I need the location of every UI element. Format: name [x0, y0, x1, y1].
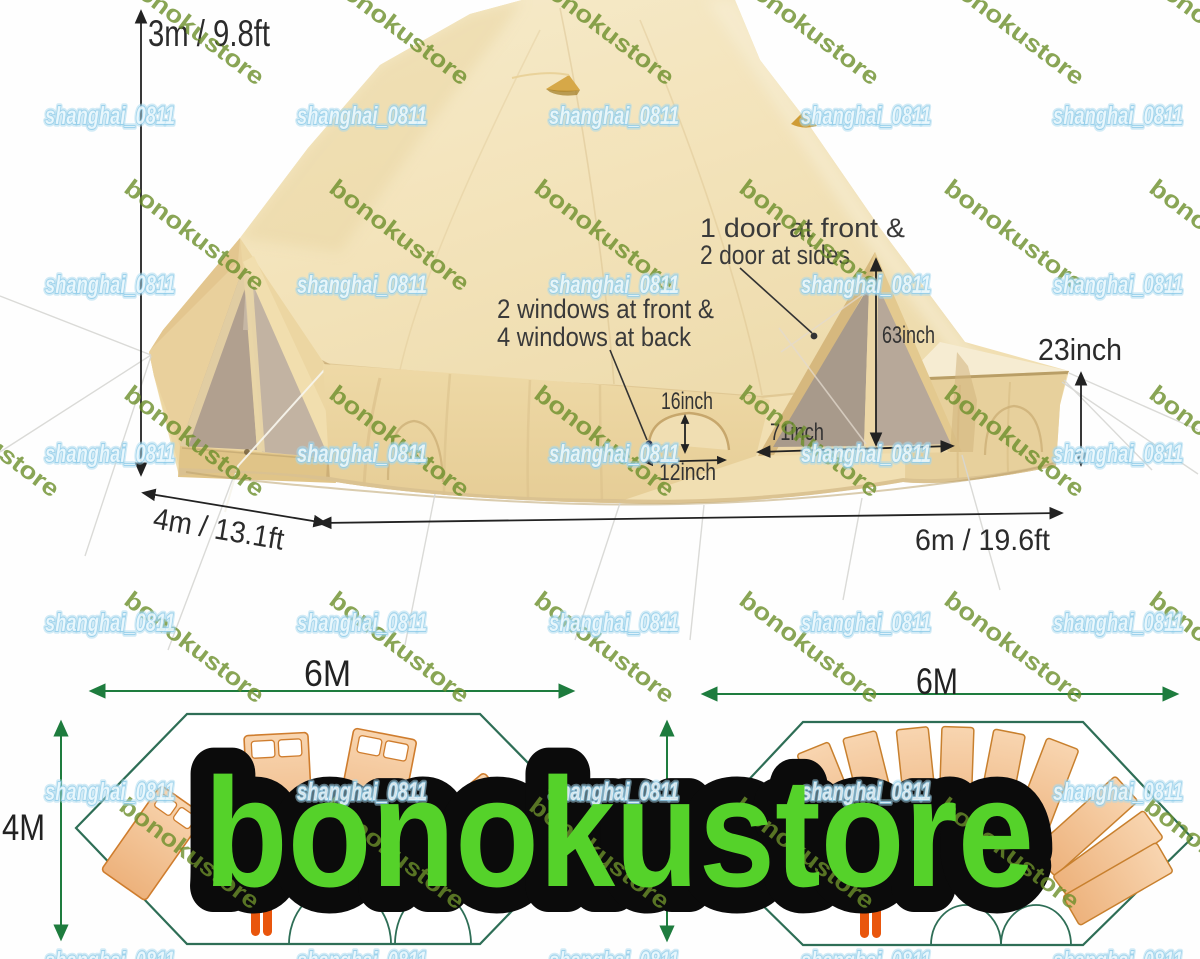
svg-text:6m / 19.6ft: 6m / 19.6ft [915, 524, 1051, 557]
svg-text:16inch: 16inch [661, 388, 713, 415]
svg-text:6M: 6M [916, 661, 958, 702]
svg-text:23inch: 23inch [1038, 332, 1122, 367]
svg-text:6M: 6M [304, 653, 351, 694]
svg-text:63inch: 63inch [882, 322, 935, 349]
svg-text:bonokustore: bonokustore [204, 746, 1034, 919]
svg-text:4 windows at back: 4 windows at back [497, 322, 691, 352]
svg-text:4M: 4M [2, 807, 45, 848]
